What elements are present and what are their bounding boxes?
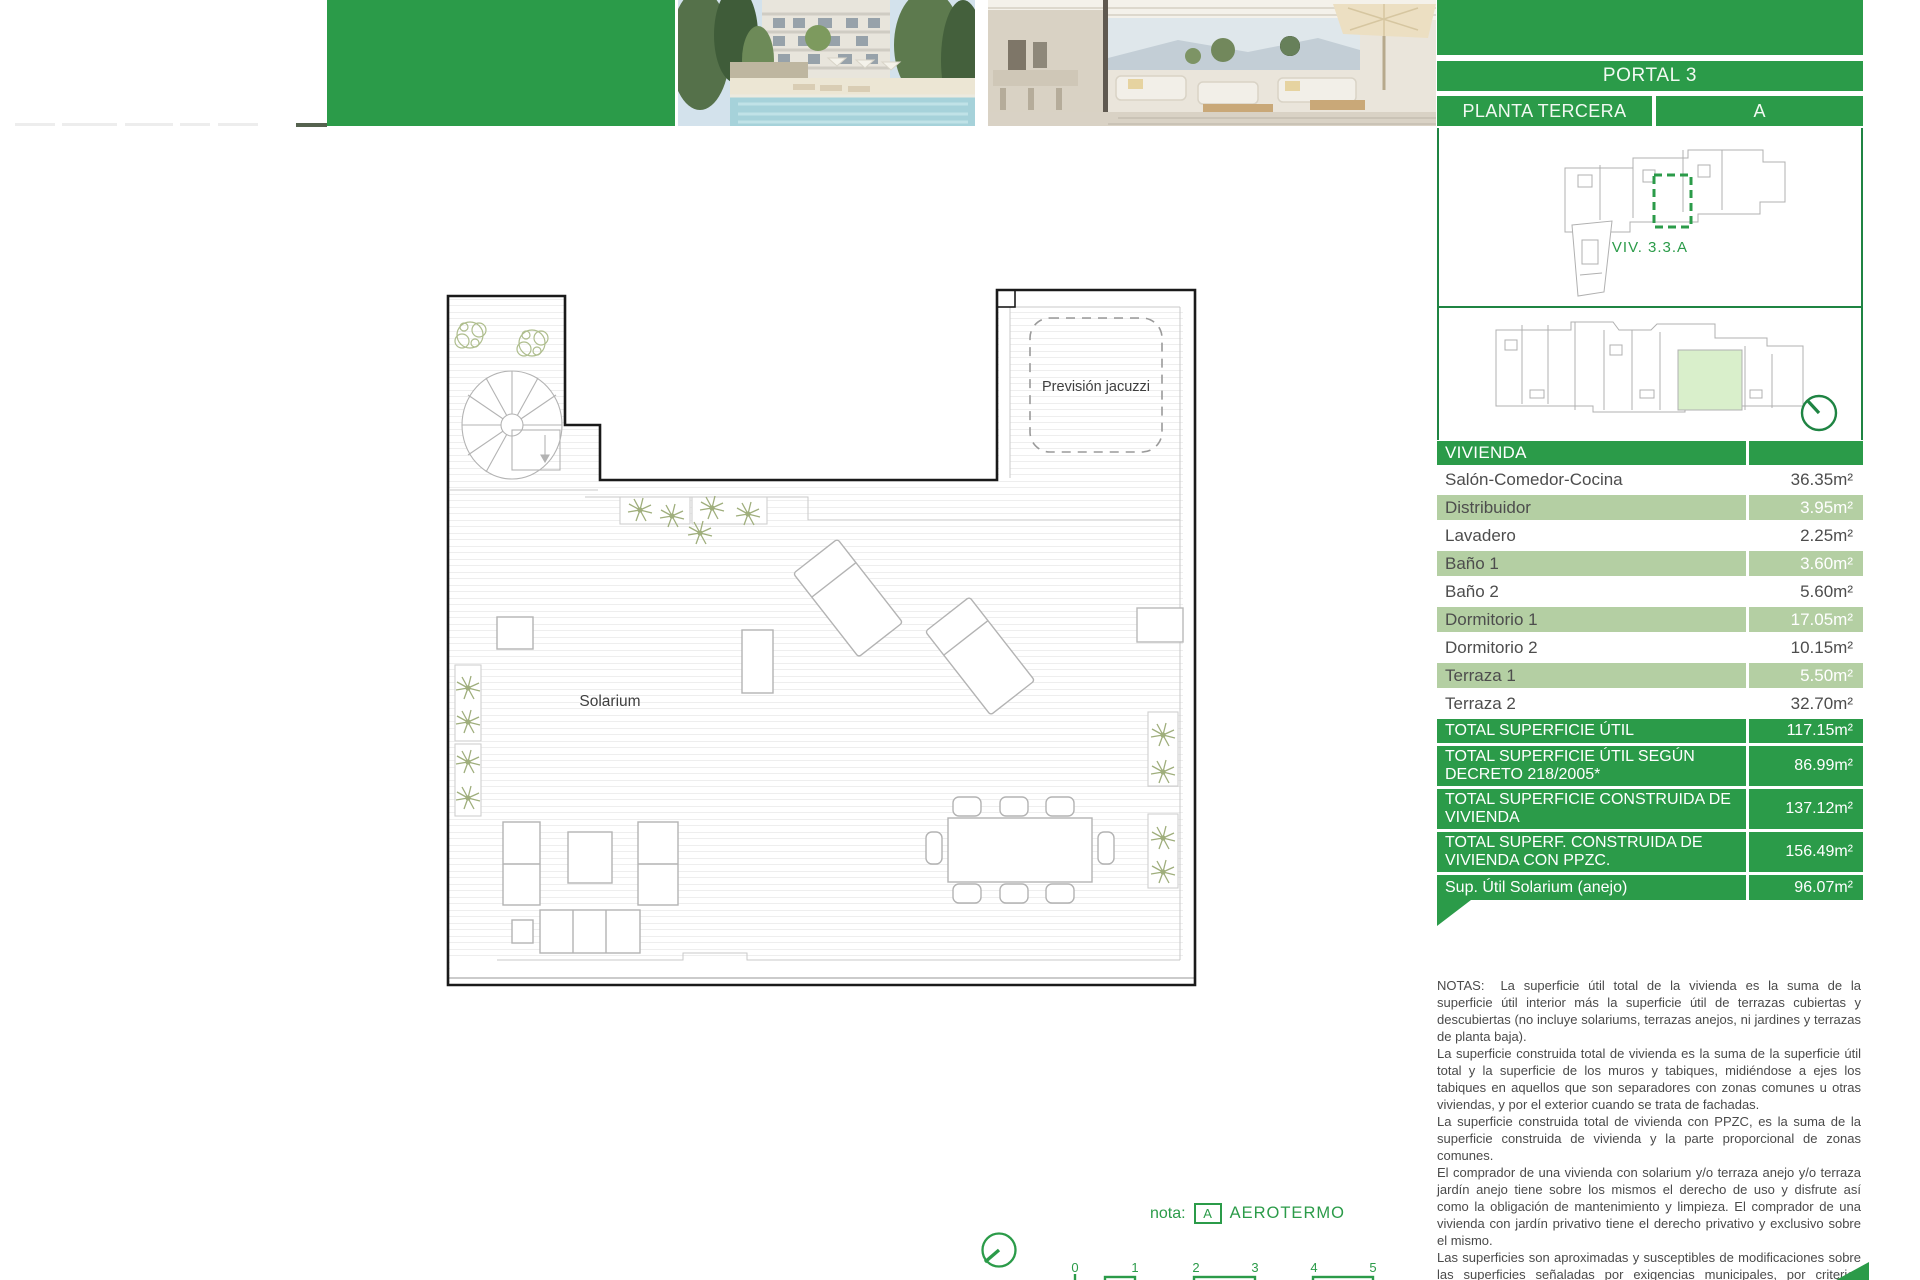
nota-label: nota: [1150,1205,1186,1223]
pillar [997,290,1015,307]
wall-notch [1137,608,1183,642]
notes-block: NOTAS:La superficie útil total de la viv… [1437,977,1861,1280]
table-row: Terraza 1 5.50m² [1437,663,1863,688]
north-compass-icon [1802,396,1836,430]
unit-highlight-fill [1678,350,1742,410]
ghost-mark [62,123,117,126]
table-section-title: VIVIENDA [1437,441,1746,465]
table-row: Dormitorio 1 17.05m² [1437,607,1863,632]
site-key-plan: VIV. 3.3.A [1437,128,1863,306]
photo-terrace [988,0,1436,126]
aerotermo-key-box: A [1194,1203,1222,1224]
compass-icon [979,1230,1021,1280]
spiral-stair [462,371,562,479]
table-header-row: VIVIENDA [1437,441,1863,465]
ghost-mark [15,123,55,126]
aerotermo-value: AEROTERMO [1230,1204,1345,1223]
ghost-mark [218,123,258,126]
svg-text:2: 2 [1192,1260,1199,1275]
photo-pool [678,0,975,126]
panel-top-bar [1437,0,1863,55]
notes-paragraph: NOTAS:La superficie útil total de la viv… [1437,977,1861,1045]
notes-paragraph: Las superficies son aproximadas y suscep… [1437,1249,1861,1280]
ghost-mark [125,123,173,126]
scale-bar: 0 1 2 3 4 5 [1060,1255,1390,1280]
floor-key-plan [1437,306,1863,440]
total-row: TOTAL SUPERFICIE ÚTIL 117.15m² [1437,719,1863,743]
edge-mark [296,123,327,127]
notes-paragraph: La superficie construida total de vivien… [1437,1045,1861,1113]
floor-title: PLANTA TERCERA [1437,96,1652,126]
unit-ref-label: VIV. 3.3.A [1612,239,1688,256]
table-row: Baño 2 5.60m² [1437,579,1863,604]
svg-text:3: 3 [1251,1260,1258,1275]
brand-green-block [327,0,675,126]
portal-title: PORTAL 3 [1437,61,1863,91]
svg-text:1: 1 [1131,1260,1138,1275]
notes-paragraph: El comprador de una vivienda con solariu… [1437,1164,1861,1249]
ghost-mark [180,123,210,126]
table-row: Baño 1 3.60m² [1437,551,1863,576]
aerotermo-note: nota: A AEROTERMO [1150,1203,1345,1224]
table-row: Salón-Comedor-Cocina 36.35m² [1437,467,1863,492]
area-table: VIVIENDA Salón-Comedor-Cocina 36.35m² Di… [1437,441,1863,903]
table-tail-triangle [1437,900,1471,926]
svg-text:4: 4 [1310,1260,1317,1275]
svg-text:5: 5 [1369,1260,1376,1275]
total-row: Sup. Útil Solarium (anejo) 96.07m² [1437,875,1863,900]
table-row: Distribuidor 3.95m² [1437,495,1863,520]
svg-text:0: 0 [1071,1260,1078,1275]
solarium-label: Solarium [579,693,640,710]
unit-letter: A [1656,96,1863,126]
table-row: Terraza 2 32.70m² [1437,691,1863,716]
notes-title: NOTAS: [1437,978,1484,993]
total-row: TOTAL SUPERF. CONSTRUIDA DE VIVIENDA CON… [1437,832,1863,872]
table-row: Lavadero 2.25m² [1437,523,1863,548]
notes-paragraph: La superficie construida total de vivien… [1437,1113,1861,1164]
table-row: Dormitorio 2 10.15m² [1437,635,1863,660]
brochure-page: Previsión jacuzzi [0,0,1920,1280]
jacuzzi-label: Previsión jacuzzi [1042,379,1150,395]
total-row: TOTAL SUPERFICIE ÚTIL SEGÚN DECRETO 218/… [1437,746,1863,786]
total-row: TOTAL SUPERFICIE CONSTRUIDA DE VIVIENDA … [1437,789,1863,829]
floor-plan: Previsión jacuzzi [440,280,1210,1000]
